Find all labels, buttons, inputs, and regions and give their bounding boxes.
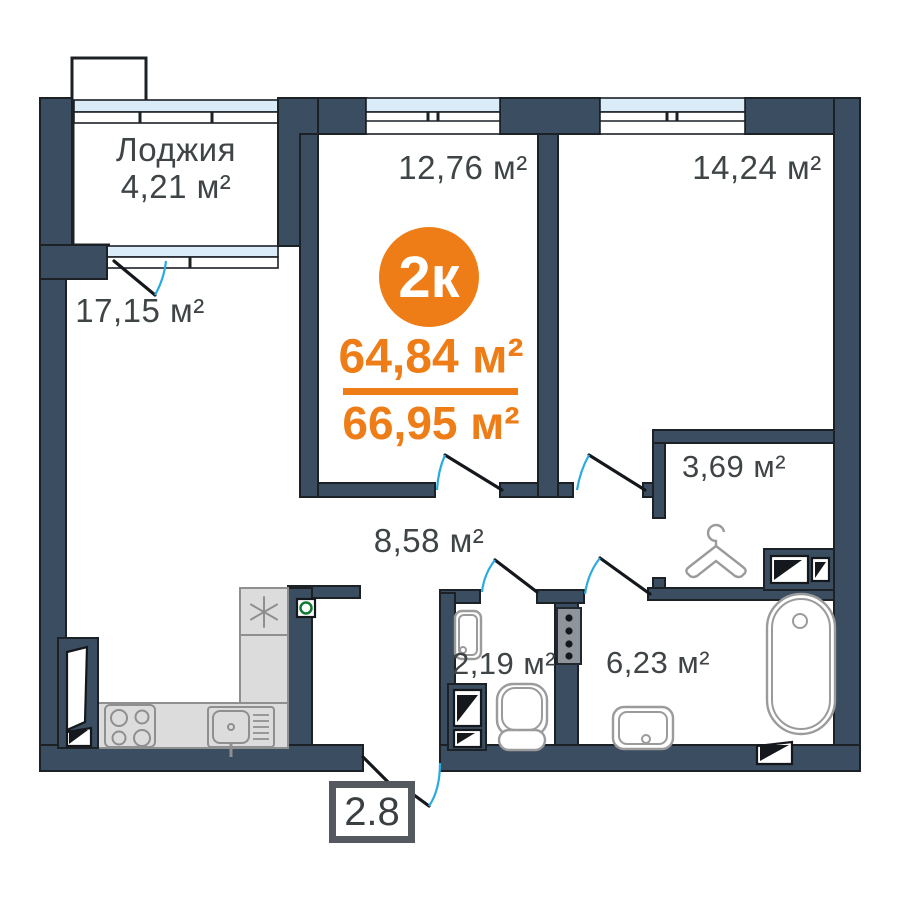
floor-plan: Лоджия 4,21 м² 17,15 м² 12,76 м² 14,24 м… — [0, 0, 900, 900]
total-area-secondary: 66,95 м² — [342, 396, 519, 450]
room-label-bedroom: 14,24 м² — [692, 149, 821, 187]
room-label-wardrobe: 3,69 м² — [682, 449, 786, 485]
bathtub-icon — [767, 594, 835, 734]
balcony-outline — [72, 58, 146, 102]
vent-shaft-icon-bath — [757, 742, 792, 764]
hanger-icon — [686, 525, 745, 577]
room-label-bathroom: 6,23 м² — [606, 645, 710, 681]
room-label-living: 17,15 м² — [75, 292, 204, 330]
window-bedroom — [600, 98, 745, 134]
wall-right — [834, 98, 860, 770]
vent-shaft-icon-wardrobe — [764, 549, 834, 590]
door-bedroom — [577, 455, 645, 490]
wall-wardrobe-top — [653, 430, 834, 443]
loggia-inner-window — [107, 246, 278, 268]
total-area-primary: 64,84 м² — [339, 330, 524, 385]
toilet-icon — [497, 684, 547, 750]
room-label-kitchen-living: 12,76 м² — [398, 149, 527, 187]
bathroom-sink-icon — [613, 707, 673, 749]
entrance-height-value: 2.8 — [344, 790, 400, 835]
outlet-icon — [297, 599, 315, 617]
window-kitchen-living — [366, 98, 500, 134]
wall-bath-jamb — [537, 590, 584, 603]
apartment-type-badge: 2к — [379, 227, 479, 327]
wall-living-kitchen — [300, 134, 318, 497]
door-kitchen-living — [437, 455, 502, 490]
wall-kitchenliving-south — [318, 483, 435, 497]
door-wc — [482, 560, 537, 592]
vent-shaft-icon-wc — [448, 684, 486, 750]
room-label-loggia-area: 4,21 м² — [121, 168, 232, 206]
wall-top-2 — [500, 98, 600, 134]
wall-top-1 — [318, 98, 366, 134]
area-divider — [343, 388, 518, 395]
plumbing-riser-icon — [557, 608, 581, 664]
door-bathroom — [585, 558, 650, 594]
wall-kitchenliving-bedroom — [538, 134, 558, 497]
room-label-loggia-name: Лоджия — [116, 131, 236, 169]
room-label-hallway: 8,58 м² — [374, 522, 485, 560]
wall-left-step — [40, 245, 107, 279]
entrance-height-tag: 2.8 — [329, 781, 415, 843]
apartment-type-label: 2к — [398, 244, 459, 311]
wall-hall-north — [500, 483, 573, 497]
vent-shaft-icon-kitchen — [58, 638, 98, 748]
loggia-window — [74, 100, 278, 123]
room-label-wc: 2,19 м² — [452, 646, 556, 682]
wall-wardrobe-left — [653, 443, 665, 518]
